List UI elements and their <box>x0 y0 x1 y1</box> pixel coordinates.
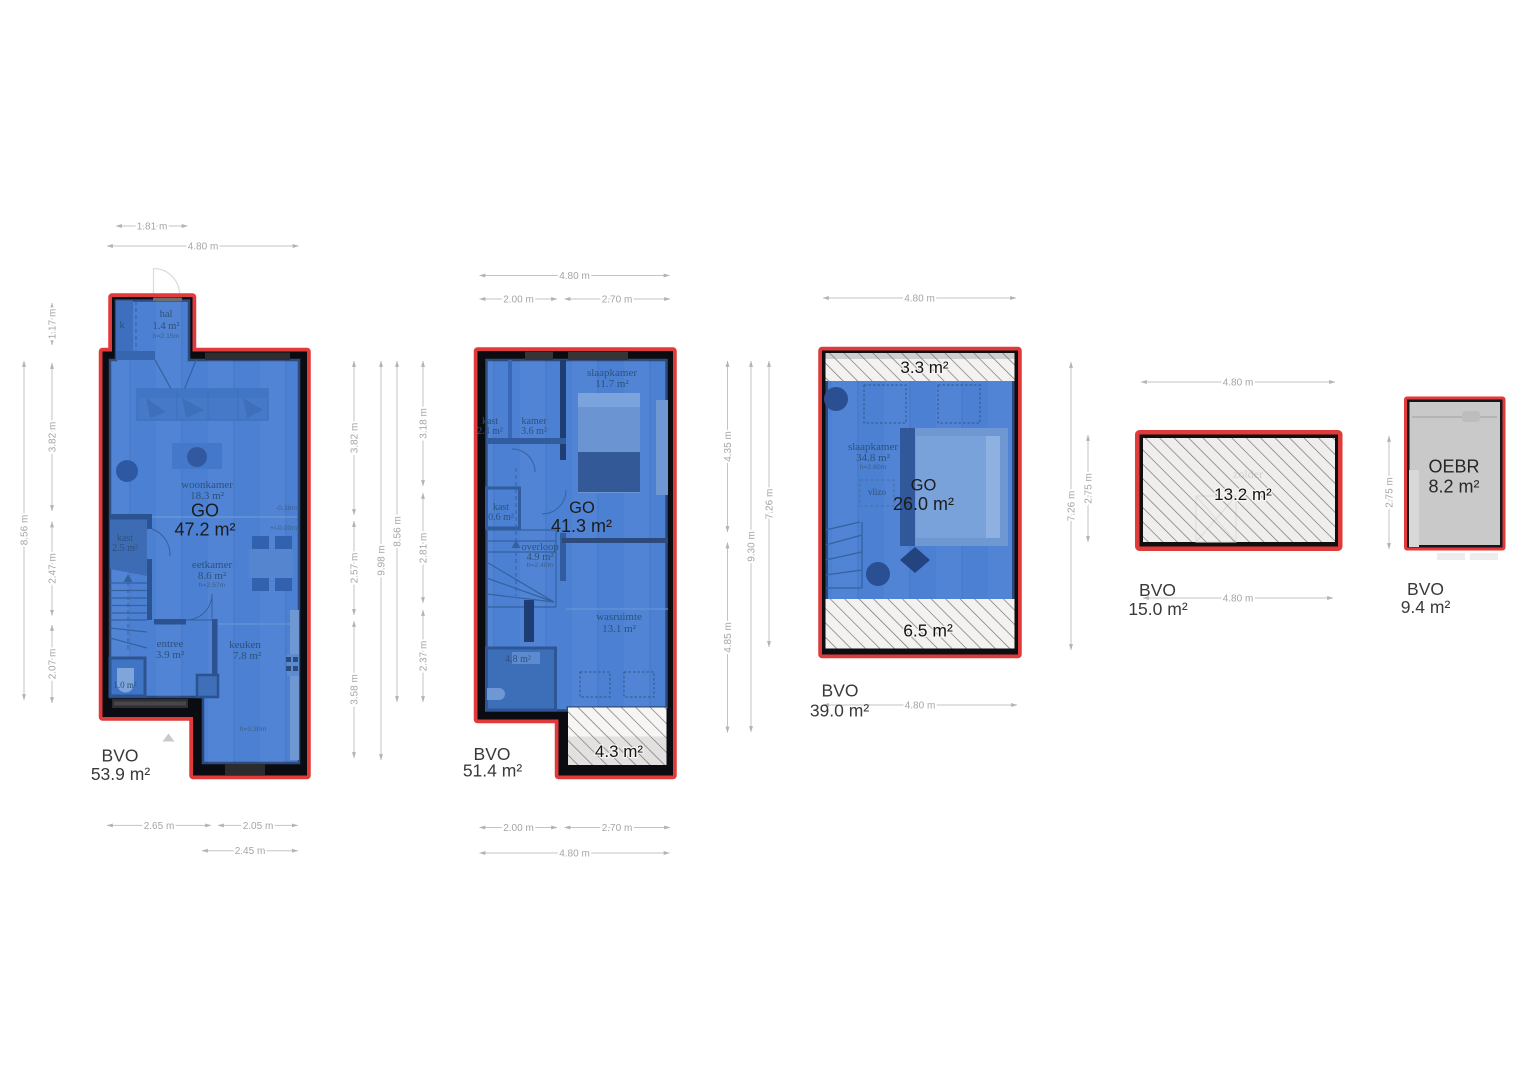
svg-text:47.2 m²: 47.2 m² <box>174 520 235 540</box>
svg-text:h=2.57m: h=2.57m <box>199 582 226 589</box>
svg-text:7.26 m: 7.26 m <box>1067 491 1078 522</box>
svg-text:11.7 m²: 11.7 m² <box>595 378 629 390</box>
svg-text:h=2.40m: h=2.40m <box>527 562 554 569</box>
svg-text:+/-0.00m: +/-0.00m <box>270 525 297 532</box>
svg-text:2.07 m: 2.07 m <box>48 649 59 680</box>
svg-text:2.4 m²: 2.4 m² <box>477 426 503 437</box>
svg-text:GO: GO <box>569 499 595 517</box>
svg-text:13.2 m²: 13.2 m² <box>1214 485 1272 504</box>
svg-text:2.5 m²: 2.5 m² <box>112 543 138 554</box>
svg-text:7.8 m²: 7.8 m² <box>233 650 262 662</box>
svg-text:k: k <box>120 320 125 331</box>
svg-text:2.00 m: 2.00 m <box>503 295 534 306</box>
svg-text:13.1 m²: 13.1 m² <box>602 623 637 635</box>
svg-text:53.9 m²: 53.9 m² <box>91 764 150 784</box>
svg-text:2.05 m: 2.05 m <box>243 821 274 832</box>
svg-text:vlizo: vlizo <box>868 487 886 497</box>
svg-text:hal: hal <box>160 309 173 320</box>
svg-text:2.75 m: 2.75 m <box>1084 473 1095 504</box>
svg-text:1.81 m: 1.81 m <box>137 222 168 233</box>
svg-text:8.56 m: 8.56 m <box>393 516 404 547</box>
svg-text:2.75 m: 2.75 m <box>1385 477 1396 508</box>
svg-text:4.80 m: 4.80 m <box>559 271 590 282</box>
svg-text:h=2.15m: h=2.15m <box>153 333 180 340</box>
svg-text:4.80 m: 4.80 m <box>1223 378 1254 389</box>
svg-text:9.98 m: 9.98 m <box>377 545 388 576</box>
svg-text:4.3 m²: 4.3 m² <box>595 742 644 761</box>
svg-text:26.0 m²: 26.0 m² <box>893 494 954 514</box>
svg-text:2.00 m: 2.00 m <box>503 823 534 834</box>
svg-text:2.47 m: 2.47 m <box>48 553 59 584</box>
svg-text:3.82 m: 3.82 m <box>48 422 59 453</box>
svg-text:4.80 m: 4.80 m <box>1223 594 1254 605</box>
svg-text:3.9 m²: 3.9 m² <box>156 649 185 661</box>
svg-text:8.2 m²: 8.2 m² <box>1428 477 1479 497</box>
svg-text:4.85 m: 4.85 m <box>723 622 734 653</box>
svg-text:BVO: BVO <box>822 681 859 701</box>
svg-text:h=3.30m: h=3.30m <box>240 726 267 733</box>
svg-text:BVO: BVO <box>102 746 139 766</box>
svg-text:0.6 m²: 0.6 m² <box>488 512 514 523</box>
svg-text:2.37 m: 2.37 m <box>419 641 430 672</box>
svg-text:39.0 m²: 39.0 m² <box>810 701 869 721</box>
svg-text:3.3 m²: 3.3 m² <box>900 358 949 377</box>
svg-text:2.70 m: 2.70 m <box>602 295 633 306</box>
svg-text:GO: GO <box>911 477 937 495</box>
svg-text:1.17 m: 1.17 m <box>48 309 59 340</box>
svg-text:8.56 m: 8.56 m <box>20 515 31 546</box>
svg-text:34.8 m²: 34.8 m² <box>856 452 891 464</box>
svg-text:BVO: BVO <box>1139 580 1176 600</box>
svg-text:9.30 m: 9.30 m <box>747 531 758 562</box>
svg-text:8.6 m²: 8.6 m² <box>198 570 227 582</box>
svg-text:wasruimte: wasruimte <box>596 611 642 623</box>
svg-text:GO: GO <box>191 501 219 521</box>
svg-text:1.0 m²: 1.0 m² <box>113 680 137 690</box>
svg-text:3.82 m: 3.82 m <box>350 423 361 454</box>
svg-text:51.4 m²: 51.4 m² <box>463 761 522 781</box>
svg-text:2.45 m: 2.45 m <box>235 846 266 857</box>
svg-text:4.35 m: 4.35 m <box>723 431 734 462</box>
svg-text:h=2.60m: h=2.60m <box>860 464 887 471</box>
svg-text:9.4 m²: 9.4 m² <box>1401 597 1451 617</box>
svg-text:6.5 m²: 6.5 m² <box>903 621 953 641</box>
svg-text:BVO: BVO <box>1407 579 1444 599</box>
svg-text:2.70 m: 2.70 m <box>602 823 633 834</box>
svg-text:3.6 m²: 3.6 m² <box>521 426 547 437</box>
svg-text:7.26 m: 7.26 m <box>765 489 776 520</box>
svg-text:4.8 m²: 4.8 m² <box>505 654 531 665</box>
svg-text:3.18 m: 3.18 m <box>419 408 430 439</box>
svg-text:-0.38m: -0.38m <box>276 505 297 512</box>
svg-text:4.80 m: 4.80 m <box>905 701 936 712</box>
svg-text:2.57 m: 2.57 m <box>350 553 361 584</box>
svg-text:3.58 m: 3.58 m <box>350 674 361 705</box>
svg-text:OEBR: OEBR <box>1428 457 1479 477</box>
svg-text:4.80 m: 4.80 m <box>559 849 590 860</box>
svg-text:4.80 m: 4.80 m <box>904 294 935 305</box>
svg-text:1.4 m²: 1.4 m² <box>152 321 179 332</box>
svg-text:4.80 m: 4.80 m <box>188 242 219 253</box>
svg-text:2.81 m: 2.81 m <box>419 533 430 564</box>
svg-text:2.65 m: 2.65 m <box>144 821 175 832</box>
svg-text:41.3 m²: 41.3 m² <box>551 516 612 536</box>
svg-text:15.0 m²: 15.0 m² <box>1128 599 1187 619</box>
